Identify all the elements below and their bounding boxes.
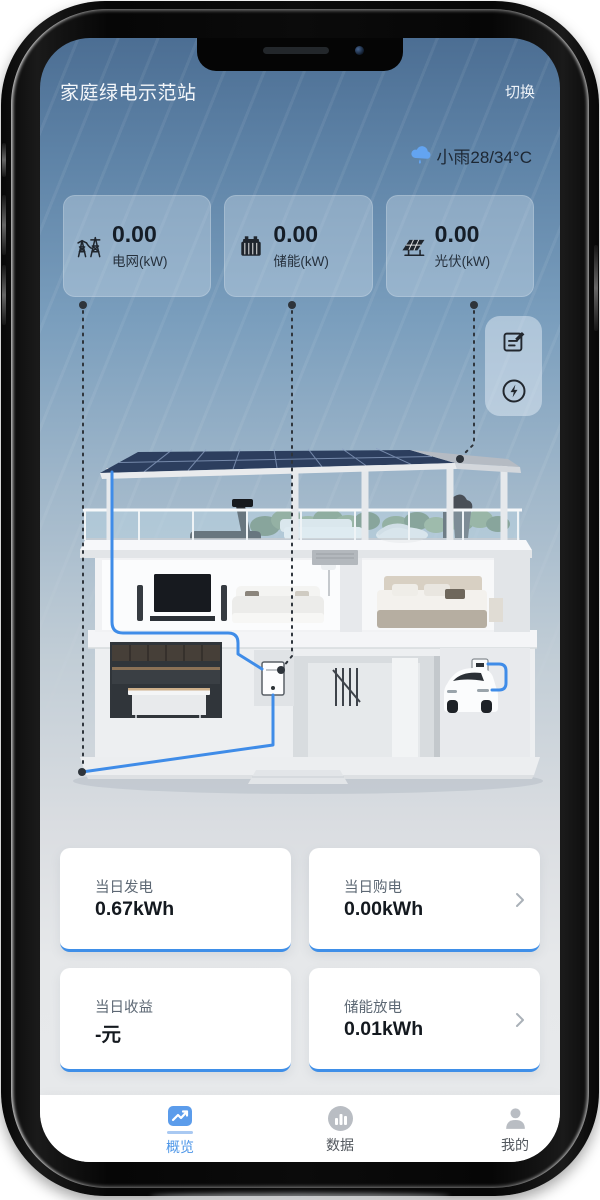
power-button bbox=[594, 245, 598, 331]
app-screen: 家庭绿电示范站 切换 小雨28/34°C bbox=[40, 38, 560, 1162]
mute-switch bbox=[2, 143, 6, 177]
power-tower-icon bbox=[75, 231, 105, 261]
edit-note-icon bbox=[500, 328, 527, 355]
front-camera bbox=[355, 46, 364, 55]
tab-overview-label: 概览 bbox=[166, 1137, 194, 1157]
realtime-stats: 0.00 电网(kW) 0.00 储能(kW) bbox=[40, 195, 560, 297]
energy-flow-button[interactable] bbox=[485, 366, 542, 416]
page-title: 家庭绿电示范站 bbox=[60, 78, 197, 105]
phone-notch bbox=[197, 38, 403, 71]
house-illustration bbox=[40, 298, 560, 838]
header: 家庭绿电示范站 切换 bbox=[40, 78, 560, 105]
pv-power-value: 0.00 bbox=[435, 222, 490, 246]
tab-data-label: 数据 bbox=[326, 1135, 354, 1155]
volume-up-button bbox=[2, 195, 6, 255]
chevron-right-icon bbox=[514, 890, 526, 910]
weather-widget[interactable]: 小雨28/34°C bbox=[409, 143, 532, 168]
stat-card-grid[interactable]: 0.00 电网(kW) bbox=[63, 195, 211, 297]
energy-flash-icon bbox=[500, 377, 528, 405]
profile-icon bbox=[502, 1105, 529, 1132]
tab-profile-label: 我的 bbox=[501, 1135, 529, 1155]
daily-summary: 当日发电 0.67kWh 当日购电 0.00kWh 当日收益 -元 储能放电 0… bbox=[60, 848, 540, 1072]
card-label: 当日收益 bbox=[95, 996, 153, 1017]
overview-chart-icon bbox=[167, 1105, 193, 1129]
weather-text: 小雨28/34°C bbox=[436, 143, 532, 168]
tab-underline bbox=[167, 1131, 193, 1134]
tab-bar: 概览 数据 我的 bbox=[40, 1095, 560, 1162]
balcony-railing bbox=[83, 510, 522, 540]
card-value: 0.01kWh bbox=[344, 1018, 423, 1041]
chevron-right-icon bbox=[514, 1010, 526, 1030]
grid-power-label: 电网(kW) bbox=[112, 250, 167, 270]
phone-mockup: 家庭绿电示范站 切换 小雨28/34°C bbox=[0, 0, 600, 1200]
card-daily-generation[interactable]: 当日发电 0.67kWh bbox=[60, 848, 291, 952]
grid-power-value: 0.00 bbox=[112, 222, 167, 246]
report-button[interactable] bbox=[485, 316, 542, 366]
garage-interior bbox=[293, 656, 440, 757]
tab-overview[interactable]: 概览 bbox=[166, 1105, 194, 1157]
solar-panel-icon bbox=[398, 231, 428, 261]
tab-profile[interactable]: 我的 bbox=[501, 1105, 529, 1155]
solar-roof bbox=[100, 448, 521, 479]
data-bars-icon bbox=[327, 1105, 354, 1132]
speaker-grille bbox=[263, 47, 329, 54]
switch-station-button[interactable]: 切换 bbox=[505, 81, 535, 102]
phone-reflection bbox=[150, 1193, 450, 1200]
pv-power-label: 光伏(kW) bbox=[435, 250, 490, 270]
card-storage-discharge[interactable]: 储能放电 0.01kWh bbox=[309, 968, 540, 1072]
card-label: 当日购电 bbox=[344, 876, 402, 897]
card-daily-purchase[interactable]: 当日购电 0.00kWh bbox=[309, 848, 540, 952]
card-label: 储能放电 bbox=[344, 996, 402, 1017]
storage-power-label: 储能(kW) bbox=[273, 250, 328, 270]
battery-icon bbox=[236, 231, 266, 261]
card-value: -元 bbox=[95, 1018, 121, 1047]
stat-card-storage[interactable]: 0.00 储能(kW) bbox=[224, 195, 372, 297]
card-value: 0.00kWh bbox=[344, 898, 423, 921]
kitchen bbox=[110, 642, 222, 718]
volume-down-button bbox=[2, 265, 6, 325]
quick-actions bbox=[485, 316, 542, 416]
storage-power-value: 0.00 bbox=[273, 222, 328, 246]
rain-cloud-icon bbox=[409, 144, 432, 167]
card-value: 0.67kWh bbox=[95, 898, 174, 921]
stat-card-pv[interactable]: 0.00 光伏(kW) bbox=[386, 195, 534, 297]
tab-data[interactable]: 数据 bbox=[326, 1105, 354, 1155]
card-daily-income[interactable]: 当日收益 -元 bbox=[60, 968, 291, 1072]
card-label: 当日发电 bbox=[95, 876, 153, 897]
